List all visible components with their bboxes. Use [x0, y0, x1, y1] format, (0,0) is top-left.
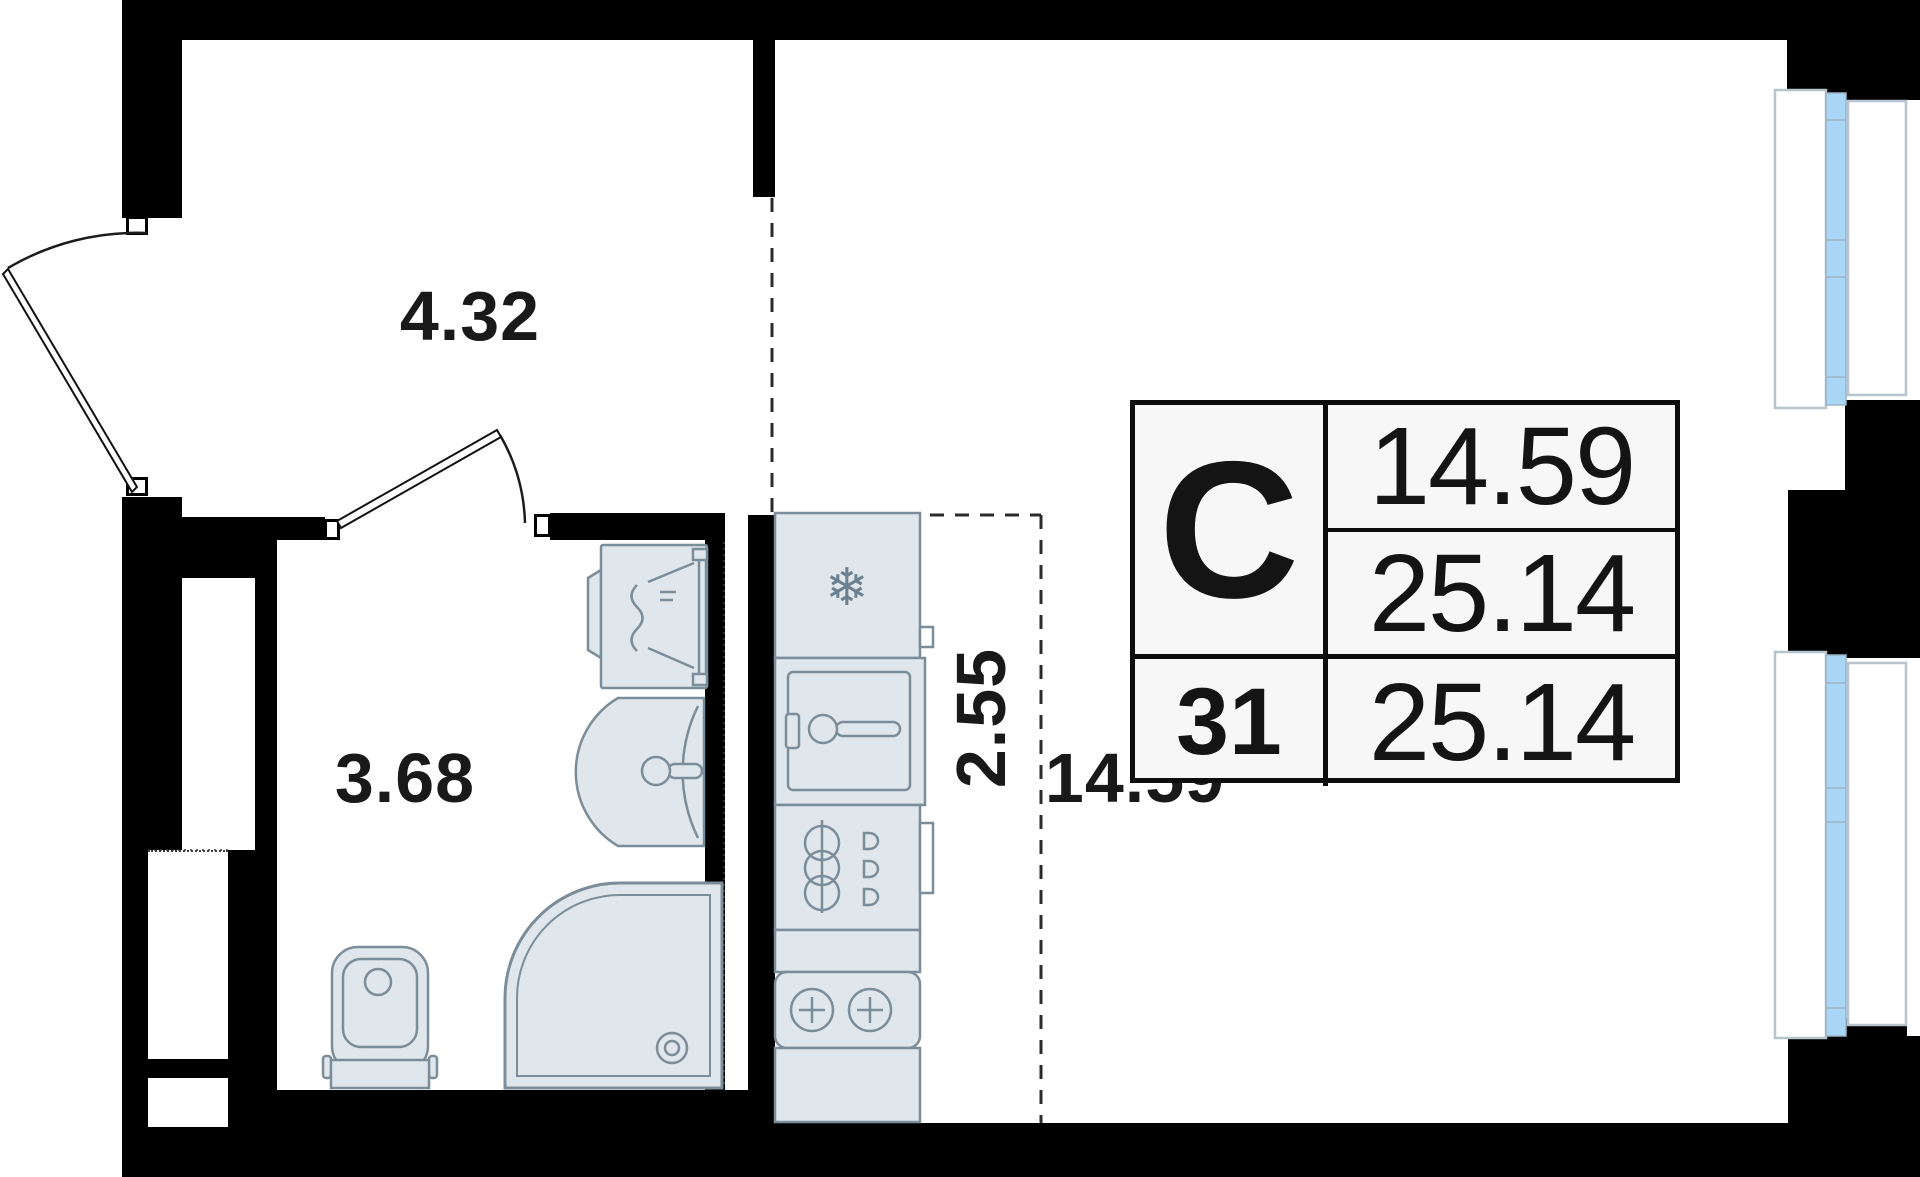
- kitchen-counter: [775, 930, 920, 972]
- bathroom-door: [337, 430, 525, 528]
- window-glass: [1826, 93, 1846, 405]
- fridge: ❄: [775, 513, 933, 658]
- window-bottom: [1775, 652, 1906, 1038]
- shower: [505, 883, 722, 1088]
- window-sill-inner: [1775, 652, 1826, 1038]
- apartment-info-table: С 14.59 25.14 31 25.14: [1130, 400, 1680, 783]
- room-label-hallway: 4.32: [400, 276, 540, 356]
- living-area-value: 14.59: [1328, 405, 1675, 528]
- kitchen-column: ❄: [775, 513, 933, 1122]
- total-area-value-repeat: 25.14: [1328, 654, 1675, 786]
- kitchen-sink: [775, 658, 925, 805]
- cooktop: [775, 972, 920, 1048]
- apartment-type-letter: С: [1135, 405, 1328, 654]
- total-area-value: 25.14: [1328, 528, 1675, 654]
- stove: [775, 805, 933, 930]
- window-ledge-outer: [1848, 663, 1906, 1025]
- snowflake-icon: ❄: [825, 558, 869, 618]
- kitchen-cabinet: [775, 1048, 920, 1122]
- bathroom-sink: [576, 698, 704, 846]
- room-label-kitchen: 2.55: [941, 648, 1021, 788]
- window-sill-inner: [1775, 90, 1826, 408]
- window-glass: [1826, 655, 1846, 1036]
- window-ledge-outer: [1848, 101, 1906, 395]
- floor-plan: ❄: [0, 0, 1920, 1177]
- entrance-door: [3, 233, 147, 492]
- apartment-number: 31: [1135, 654, 1328, 786]
- room-label-bathroom: 3.68: [335, 738, 475, 818]
- toilet: [323, 947, 437, 1088]
- washing-machine: [588, 545, 707, 688]
- window-top: [1775, 90, 1906, 408]
